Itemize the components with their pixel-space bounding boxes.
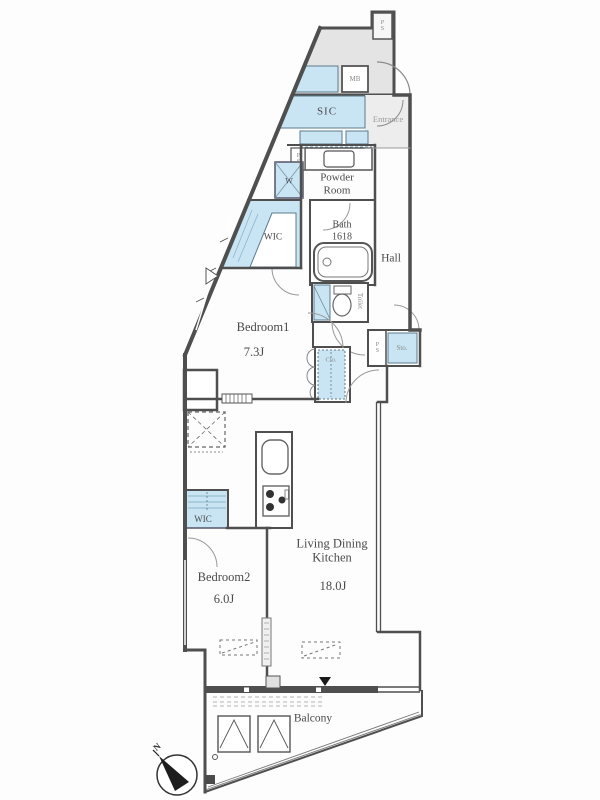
bedroom1-window-sill	[222, 394, 252, 403]
bathroom	[310, 200, 375, 285]
balcony	[205, 690, 422, 792]
washer-space	[275, 162, 303, 198]
refrigerator-space	[188, 412, 225, 452]
sliding-door	[262, 618, 271, 666]
storage-block	[368, 305, 420, 366]
drain-cap	[213, 755, 218, 760]
meter-box	[342, 66, 368, 92]
floorplan-page: MB PS SIC Entrance Powder Room W WIC Bat…	[0, 0, 600, 800]
toilet-bowl	[333, 294, 351, 316]
floorplan-drawing	[0, 0, 600, 800]
ceiling-beam-marks	[220, 640, 340, 658]
entry-marker	[319, 677, 331, 686]
corner-block	[206, 775, 215, 784]
wic1-door-arc	[272, 268, 299, 295]
south-wall	[205, 676, 420, 693]
ac-unit-space	[218, 716, 290, 752]
closet	[307, 347, 350, 402]
kitchen-counter	[256, 432, 292, 528]
compass-icon	[153, 750, 197, 795]
pipe-space-top-box	[373, 13, 392, 39]
kitchen-sink	[262, 440, 288, 474]
walk-in-closet-2	[186, 490, 228, 567]
toilet-tank	[334, 286, 351, 294]
pillar-box	[184, 370, 217, 410]
toilet-room	[312, 283, 368, 355]
